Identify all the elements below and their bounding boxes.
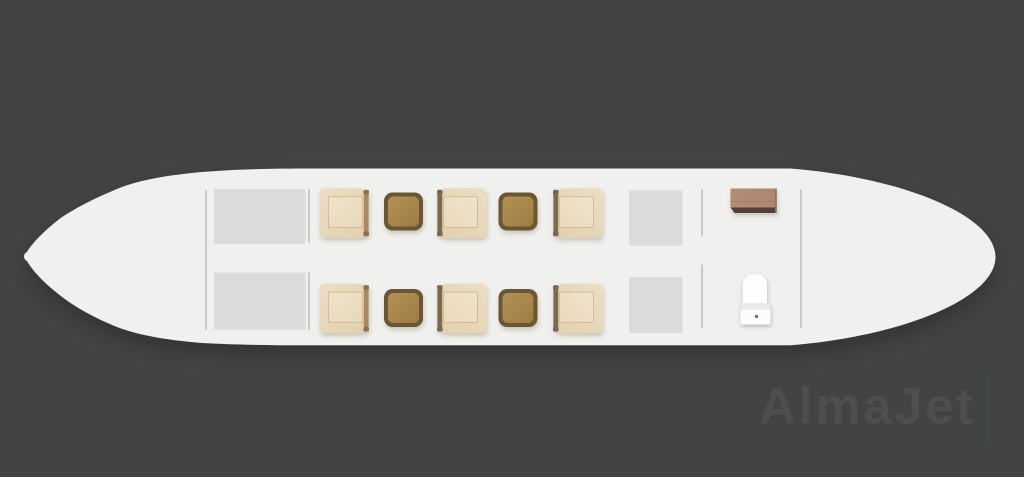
svg-text:AlmaJet: AlmaJet [759, 378, 976, 435]
